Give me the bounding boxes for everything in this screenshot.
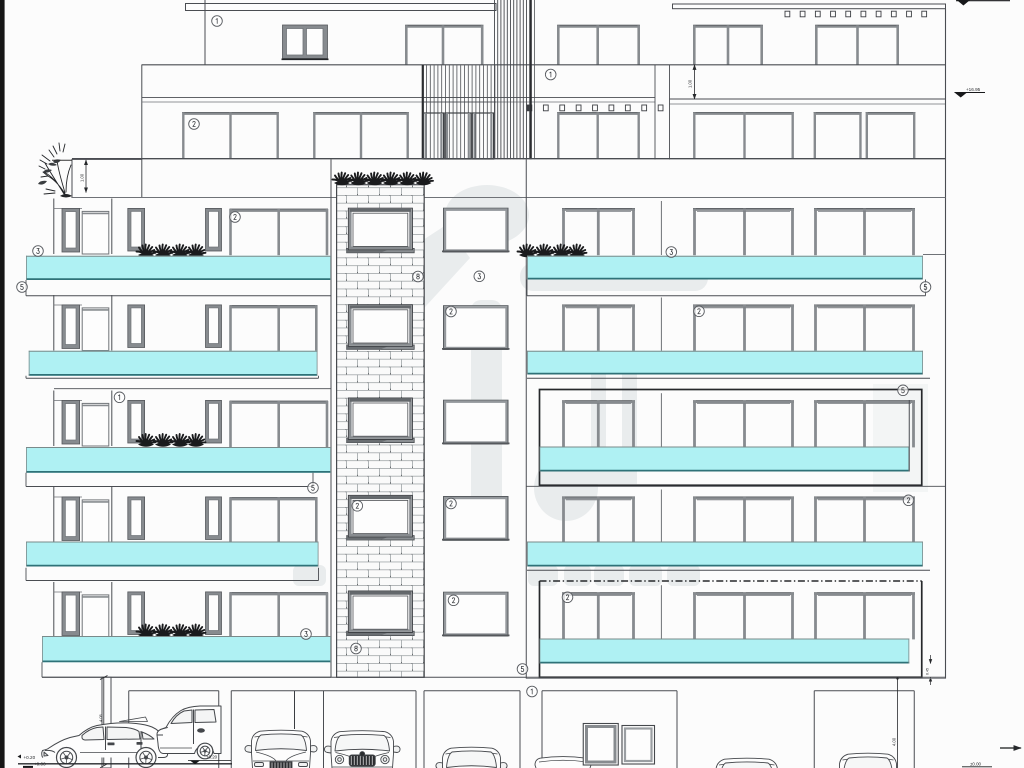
svg-text:1.00: 1.00 bbox=[80, 173, 85, 182]
svg-text:0.45: 0.45 bbox=[926, 668, 930, 675]
svg-text:+0.20: +0.20 bbox=[206, 755, 218, 760]
svg-text:+16.95: +16.95 bbox=[966, 87, 981, 92]
svg-text:1.00: 1.00 bbox=[688, 79, 693, 88]
svg-text:+0.00: +0.00 bbox=[34, 761, 46, 766]
svg-text:±0.00: ±0.00 bbox=[970, 762, 982, 767]
svg-text:4.05: 4.05 bbox=[98, 713, 103, 722]
svg-text:4.00: 4.00 bbox=[891, 737, 896, 746]
svg-text:+0.20: +0.20 bbox=[24, 755, 36, 760]
